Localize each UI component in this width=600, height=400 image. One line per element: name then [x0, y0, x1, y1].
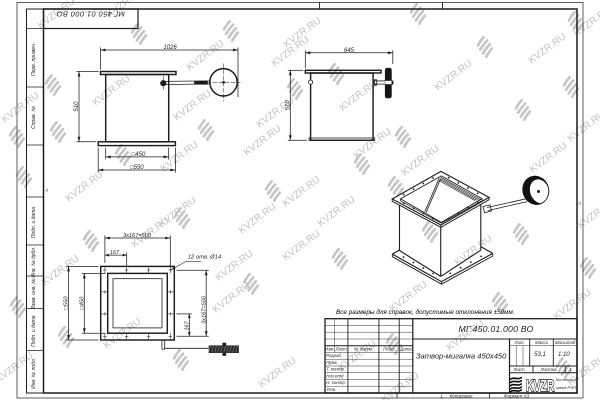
svg-text:Лит.: Лит.: [513, 340, 524, 345]
svg-text:Все размеры для справок, допус: Все размеры для справок, допустимые откл…: [336, 308, 515, 316]
svg-text:Инв. № дубл.: Инв. № дубл.: [31, 247, 37, 278]
svg-text:53,1: 53,1: [534, 352, 546, 358]
svg-text:Подп. и дата: Подп. и дата: [31, 207, 37, 239]
svg-text:Пров.: Пров.: [326, 360, 338, 365]
svg-text:KVZR.RU: KVZR.RU: [433, 58, 475, 93]
svg-text:KVZR.RU: KVZR.RU: [527, 31, 569, 66]
svg-text:645: 645: [344, 48, 355, 54]
svg-text:KVZR.RU: KVZR.RU: [40, 253, 82, 288]
svg-text:Справ. №: Справ. №: [31, 106, 37, 129]
svg-text:1026: 1026: [163, 45, 177, 51]
svg-text:Копировал: Копировал: [450, 393, 473, 398]
svg-text:Лист: Лист: [512, 367, 525, 372]
svg-text:KVZR.RU: KVZR.RU: [316, 194, 358, 229]
svg-text:Листов: Листов: [540, 367, 558, 372]
svg-text:Масса: Масса: [535, 340, 549, 345]
svg-text:Формат А3: Формат А3: [504, 393, 530, 398]
svg-text:1:10: 1:10: [558, 352, 570, 358]
svg-text:Дата: Дата: [399, 346, 412, 351]
svg-text:KVZR.RU: KVZR.RU: [528, 140, 570, 175]
svg-text:KVZR.RU: KVZR.RU: [380, 370, 422, 400]
svg-text:□450: □450: [132, 152, 146, 158]
svg-text:510: 510: [285, 100, 291, 111]
svg-text:KVZR.RU: KVZR.RU: [281, 228, 323, 263]
svg-text:Нач.отд: Нач.отд: [326, 373, 344, 378]
svg-text:Утв.: Утв.: [326, 387, 336, 392]
svg-text:KVZR.RU: KVZR.RU: [257, 355, 299, 390]
svg-text:KVZR.RU: KVZR.RU: [237, 201, 279, 236]
svg-text:KVZR.RU: KVZR.RU: [91, 73, 133, 108]
svg-text:А: А: [44, 188, 48, 193]
svg-text:Изм.: Изм.: [325, 346, 334, 351]
svg-text:Инв. № подл.: Инв. № подл.: [31, 358, 37, 389]
svg-text:KVZR.RU: KVZR.RU: [400, 143, 442, 178]
svg-text:KVZR.RU: KVZR.RU: [172, 88, 214, 123]
svg-text:□550: □550: [130, 165, 144, 171]
svg-text:1: 1: [440, 393, 443, 398]
svg-text:167: 167: [110, 250, 120, 256]
svg-text:Взам. инв. №: Взам. инв. №: [31, 278, 37, 310]
svg-text:KVZR.RU: KVZR.RU: [185, 38, 227, 73]
svg-text:□550: □550: [64, 296, 70, 310]
svg-text:Лист: Лист: [335, 346, 348, 351]
svg-text:Котельный: Котельный: [556, 377, 579, 382]
svg-text:завод РЭП: завод РЭП: [555, 385, 576, 390]
svg-text:3x167=500: 3x167=500: [123, 233, 152, 239]
svg-text:KVZR.RU: KVZR.RU: [281, 174, 323, 209]
svg-text:Подп.: Подп.: [383, 346, 395, 351]
svg-text:А: А: [577, 201, 581, 206]
svg-text:510: 510: [74, 101, 80, 112]
svg-text:3x167=500: 3x167=500: [201, 295, 207, 324]
svg-text:№ докум.: № докум.: [354, 346, 373, 351]
svg-text:□450: □450: [79, 296, 85, 310]
svg-text:Масштаб: Масштаб: [555, 340, 576, 345]
svg-text:МГ.450.01.000 ВО: МГ.450.01.000 ВО: [459, 324, 534, 334]
svg-text:Н. контр.: Н. контр.: [326, 380, 346, 385]
svg-text:KVZR.RU: KVZR.RU: [552, 287, 594, 322]
svg-text:МГ.450.01.000 ВО: МГ.450.01.000 ВО: [57, 9, 125, 18]
svg-text:12 отв. Ø14: 12 отв. Ø14: [188, 254, 221, 260]
svg-text:Подп. и дата: Подп. и дата: [31, 315, 37, 347]
svg-text:Разраб.: Разраб.: [326, 353, 342, 358]
svg-text:Затвор-мигалка 450х450: Затвор-мигалка 450х450: [416, 351, 507, 360]
svg-text:KVZR: KVZR: [526, 377, 555, 395]
svg-text:KVZR.RU: KVZR.RU: [64, 169, 106, 204]
svg-text:Перв. примен.: Перв. примен.: [31, 43, 37, 76]
svg-text:Т. контр.: Т. контр.: [326, 367, 345, 372]
svg-text:167: 167: [184, 320, 190, 330]
